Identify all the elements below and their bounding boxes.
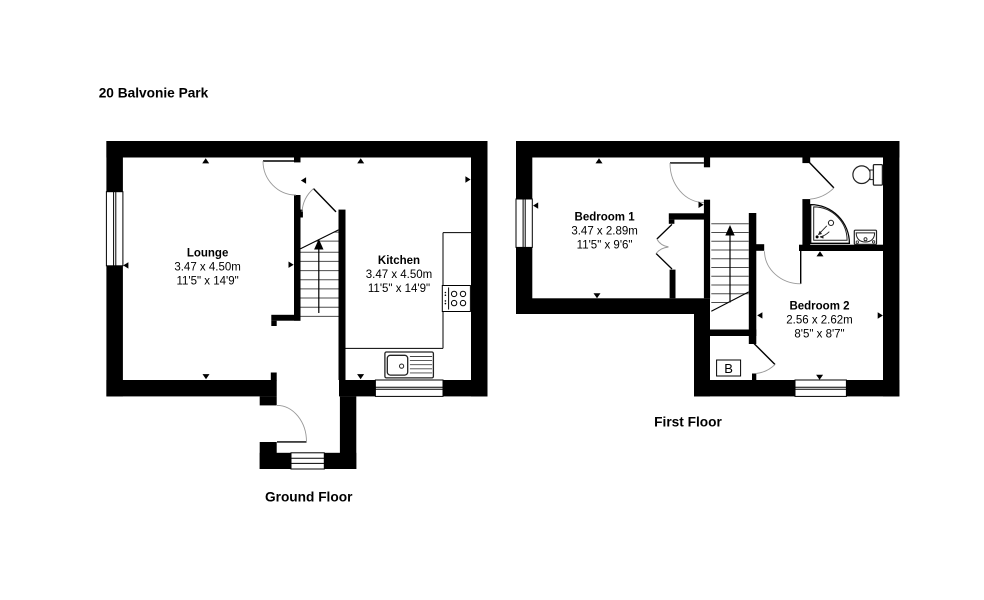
svg-text:3.47 x 2.89m: 3.47 x 2.89m — [571, 226, 637, 238]
svg-text:8'5" x 8'7": 8'5" x 8'7" — [794, 329, 844, 341]
svg-text:3.47 x 4.50m: 3.47 x 4.50m — [366, 269, 432, 281]
svg-text:B: B — [724, 361, 733, 376]
svg-text:11'5" x 14'9": 11'5" x 14'9" — [176, 276, 238, 288]
svg-text:Bedroom 1: Bedroom 1 — [575, 212, 636, 224]
svg-text:Kitchen: Kitchen — [378, 255, 420, 267]
svg-text:Ground Floor: Ground Floor — [265, 490, 353, 505]
svg-text:Lounge: Lounge — [187, 248, 229, 260]
svg-text:First Floor: First Floor — [654, 414, 722, 429]
svg-text:11'5" x 14'9": 11'5" x 14'9" — [368, 283, 430, 295]
svg-text:3.47 x 4.50m: 3.47 x 4.50m — [174, 262, 240, 274]
svg-text:20 Balvonie Park: 20 Balvonie Park — [99, 86, 209, 101]
svg-text:Bedroom 2: Bedroom 2 — [789, 301, 849, 313]
svg-text:11'5" x 9'6": 11'5" x 9'6" — [577, 240, 633, 252]
svg-text:2.56 x 2.62m: 2.56 x 2.62m — [786, 315, 852, 327]
